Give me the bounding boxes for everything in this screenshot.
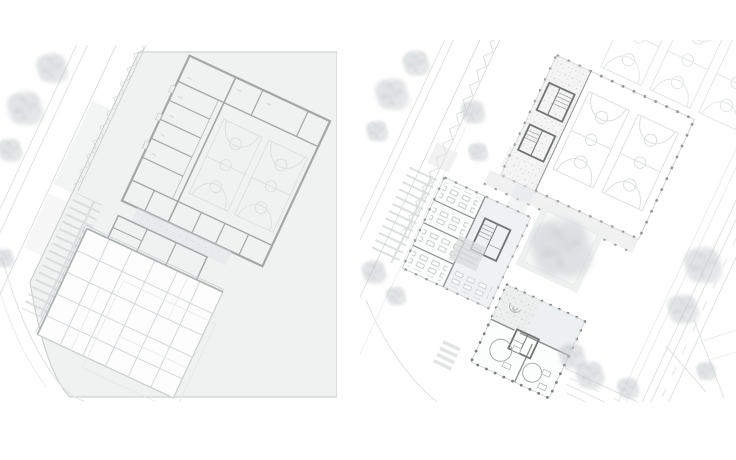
crosswalk: [433, 340, 461, 370]
left-site-plan-panel: [0, 0, 384, 460]
plan-comparison-stage: [0, 0, 736, 460]
sports-hall-b: [501, 55, 695, 239]
site-plan-canvas: [0, 0, 736, 460]
right-site-plan-panel: [289, 0, 736, 460]
